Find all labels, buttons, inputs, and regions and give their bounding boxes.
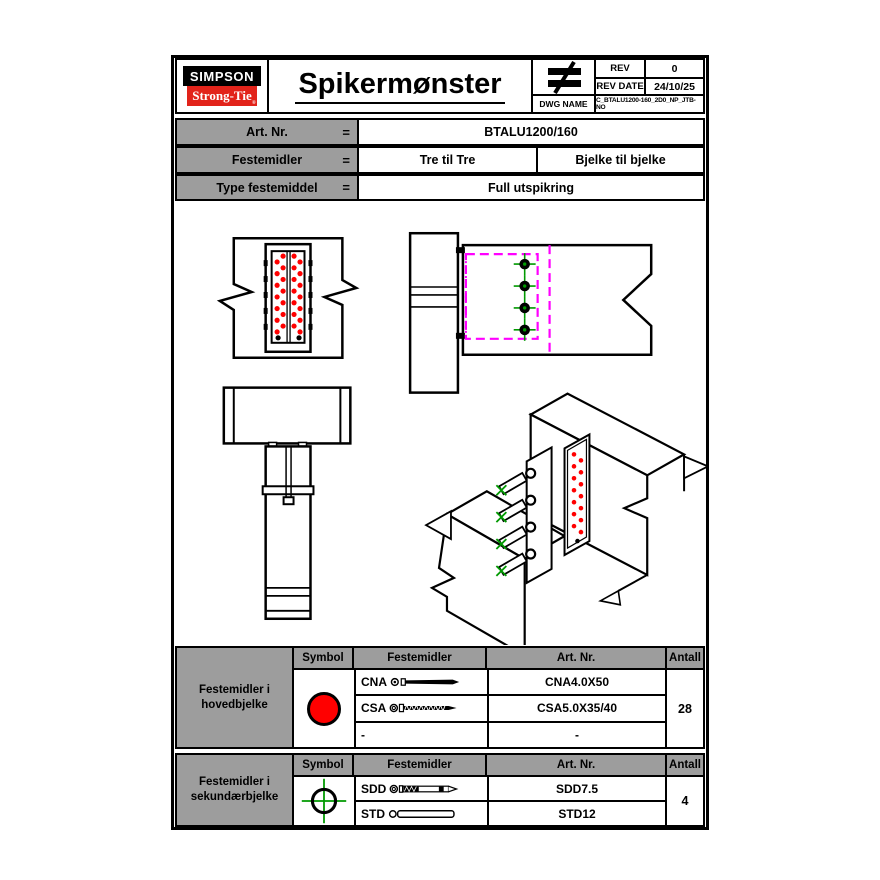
- registered-mark: ®: [252, 101, 256, 106]
- art-nr-cell: SDD7.5: [489, 777, 665, 800]
- header-art-nr: Art. Nr.: [487, 648, 665, 670]
- param-value-full-utspikring: Full utspikring: [359, 176, 703, 199]
- fastener-table-sekundaerbjelke: Festemidler i sekundærbjelke Symbol Fest…: [175, 753, 705, 827]
- param-label: Festemidler=: [177, 148, 359, 172]
- rev-date-value: 24/10/25: [644, 77, 703, 94]
- equals-sign: =: [342, 125, 350, 140]
- header-antall: Antall: [665, 648, 703, 670]
- sdd-dowel-icon: [389, 781, 463, 797]
- fastener-cell: SDD: [356, 777, 489, 800]
- fastener-cell: CSA: [356, 696, 489, 720]
- table-row-label: Festemidler i hovedbjelke: [177, 648, 294, 747]
- strongtie-logo: Strong-Tie®: [187, 86, 256, 106]
- table-header-row: Symbol Festemidler Art. Nr. Antall: [294, 755, 703, 777]
- antall-cell: 28: [665, 670, 703, 747]
- logo-cell: SIMPSON Strong-Tie®: [177, 60, 269, 112]
- param-row-art-nr: Art. Nr.= BTALU1200/160: [175, 118, 705, 146]
- equals-sign: =: [342, 153, 350, 168]
- param-row-festemidler: Festemidler= Tre til Tre Bjelke til bjel…: [175, 146, 705, 174]
- param-value-tre-til-tre: Tre til Tre: [359, 148, 538, 172]
- side-view: [410, 233, 651, 392]
- param-label: Art. Nr.=: [177, 120, 359, 144]
- param-label: Type festemiddel=: [177, 176, 359, 199]
- art-nr-cell: CNA4.0X50: [489, 670, 665, 694]
- not-equal-logo-icon: [533, 60, 594, 94]
- simpson-logo: SIMPSON: [183, 66, 261, 86]
- std-dowel-icon: [388, 806, 462, 822]
- fastener-table-hovedbjelke: Festemidler i hovedbjelke Symbol Festemi…: [175, 646, 705, 749]
- param-value-bjelke-til-bjelke: Bjelke til bjelke: [538, 148, 703, 172]
- param-value-art-nr: BTALU1200/160: [359, 120, 703, 144]
- header-art-nr: Art. Nr.: [487, 755, 665, 777]
- drawing-sheet-canvas: SIMPSON Strong-Tie® Spikermønster REV 0 …: [0, 0, 880, 880]
- header-symbol: Symbol: [294, 755, 354, 777]
- fastener-cell: CNA: [356, 670, 489, 694]
- symbol-cell: [294, 777, 356, 825]
- table-row: CSA CSA5.0X35/40: [356, 696, 665, 722]
- antall-cell: 4: [665, 777, 703, 825]
- sheet-border: SIMPSON Strong-Tie® Spikermønster REV 0 …: [171, 55, 709, 830]
- rev-value: 0: [644, 60, 703, 77]
- equals-sign: =: [342, 180, 350, 195]
- page-title: Spikermønster: [295, 68, 504, 104]
- table-row: CNA CNA4.0X50: [356, 670, 665, 696]
- rev-date-label: REV DATE: [594, 77, 644, 94]
- art-nr-cell: STD12: [489, 802, 665, 825]
- table-row-label: Festemidler i sekundærbjelke: [177, 755, 294, 825]
- header-antall: Antall: [665, 755, 703, 777]
- green-crosshair-symbol: [300, 777, 348, 825]
- table-row: STD STD12: [356, 802, 665, 825]
- title-cell: Spikermønster: [269, 60, 533, 112]
- rev-label: REV: [594, 60, 644, 77]
- param-row-type-festemiddel: Type festemiddel= Full utspikring: [175, 174, 705, 201]
- cna-nail-icon: [390, 674, 464, 690]
- title-block: SIMPSON Strong-Tie® Spikermønster REV 0 …: [175, 58, 705, 114]
- header-festemidler: Festemidler: [354, 755, 487, 777]
- isometric-view: [426, 394, 706, 645]
- table-header-row: Symbol Festemidler Art. Nr. Antall: [294, 648, 703, 670]
- header-symbol: Symbol: [294, 648, 354, 670]
- art-nr-cell: CSA5.0X35/40: [489, 696, 665, 720]
- red-circle-symbol: [307, 692, 341, 726]
- fastener-cell: STD: [356, 802, 489, 825]
- dwg-name-label: DWG NAME: [533, 94, 594, 112]
- front-view: [220, 238, 356, 358]
- revision-block: REV 0 REV DATE 24/10/25 DWG NAME C_BTALU…: [533, 60, 703, 112]
- fastener-cell: -: [356, 723, 489, 747]
- csa-screw-icon: [389, 700, 463, 716]
- dwg-name-value: C_BTALU1200-160_2D0_NP_JTB-NO: [594, 94, 703, 112]
- symbol-cell: [294, 670, 356, 747]
- table-row: - -: [356, 723, 665, 747]
- technical-drawing-area: [174, 202, 706, 645]
- top-view: [224, 388, 351, 619]
- art-nr-cell: -: [489, 723, 665, 747]
- header-festemidler: Festemidler: [354, 648, 487, 670]
- table-row: SDD SDD7.5: [356, 777, 665, 802]
